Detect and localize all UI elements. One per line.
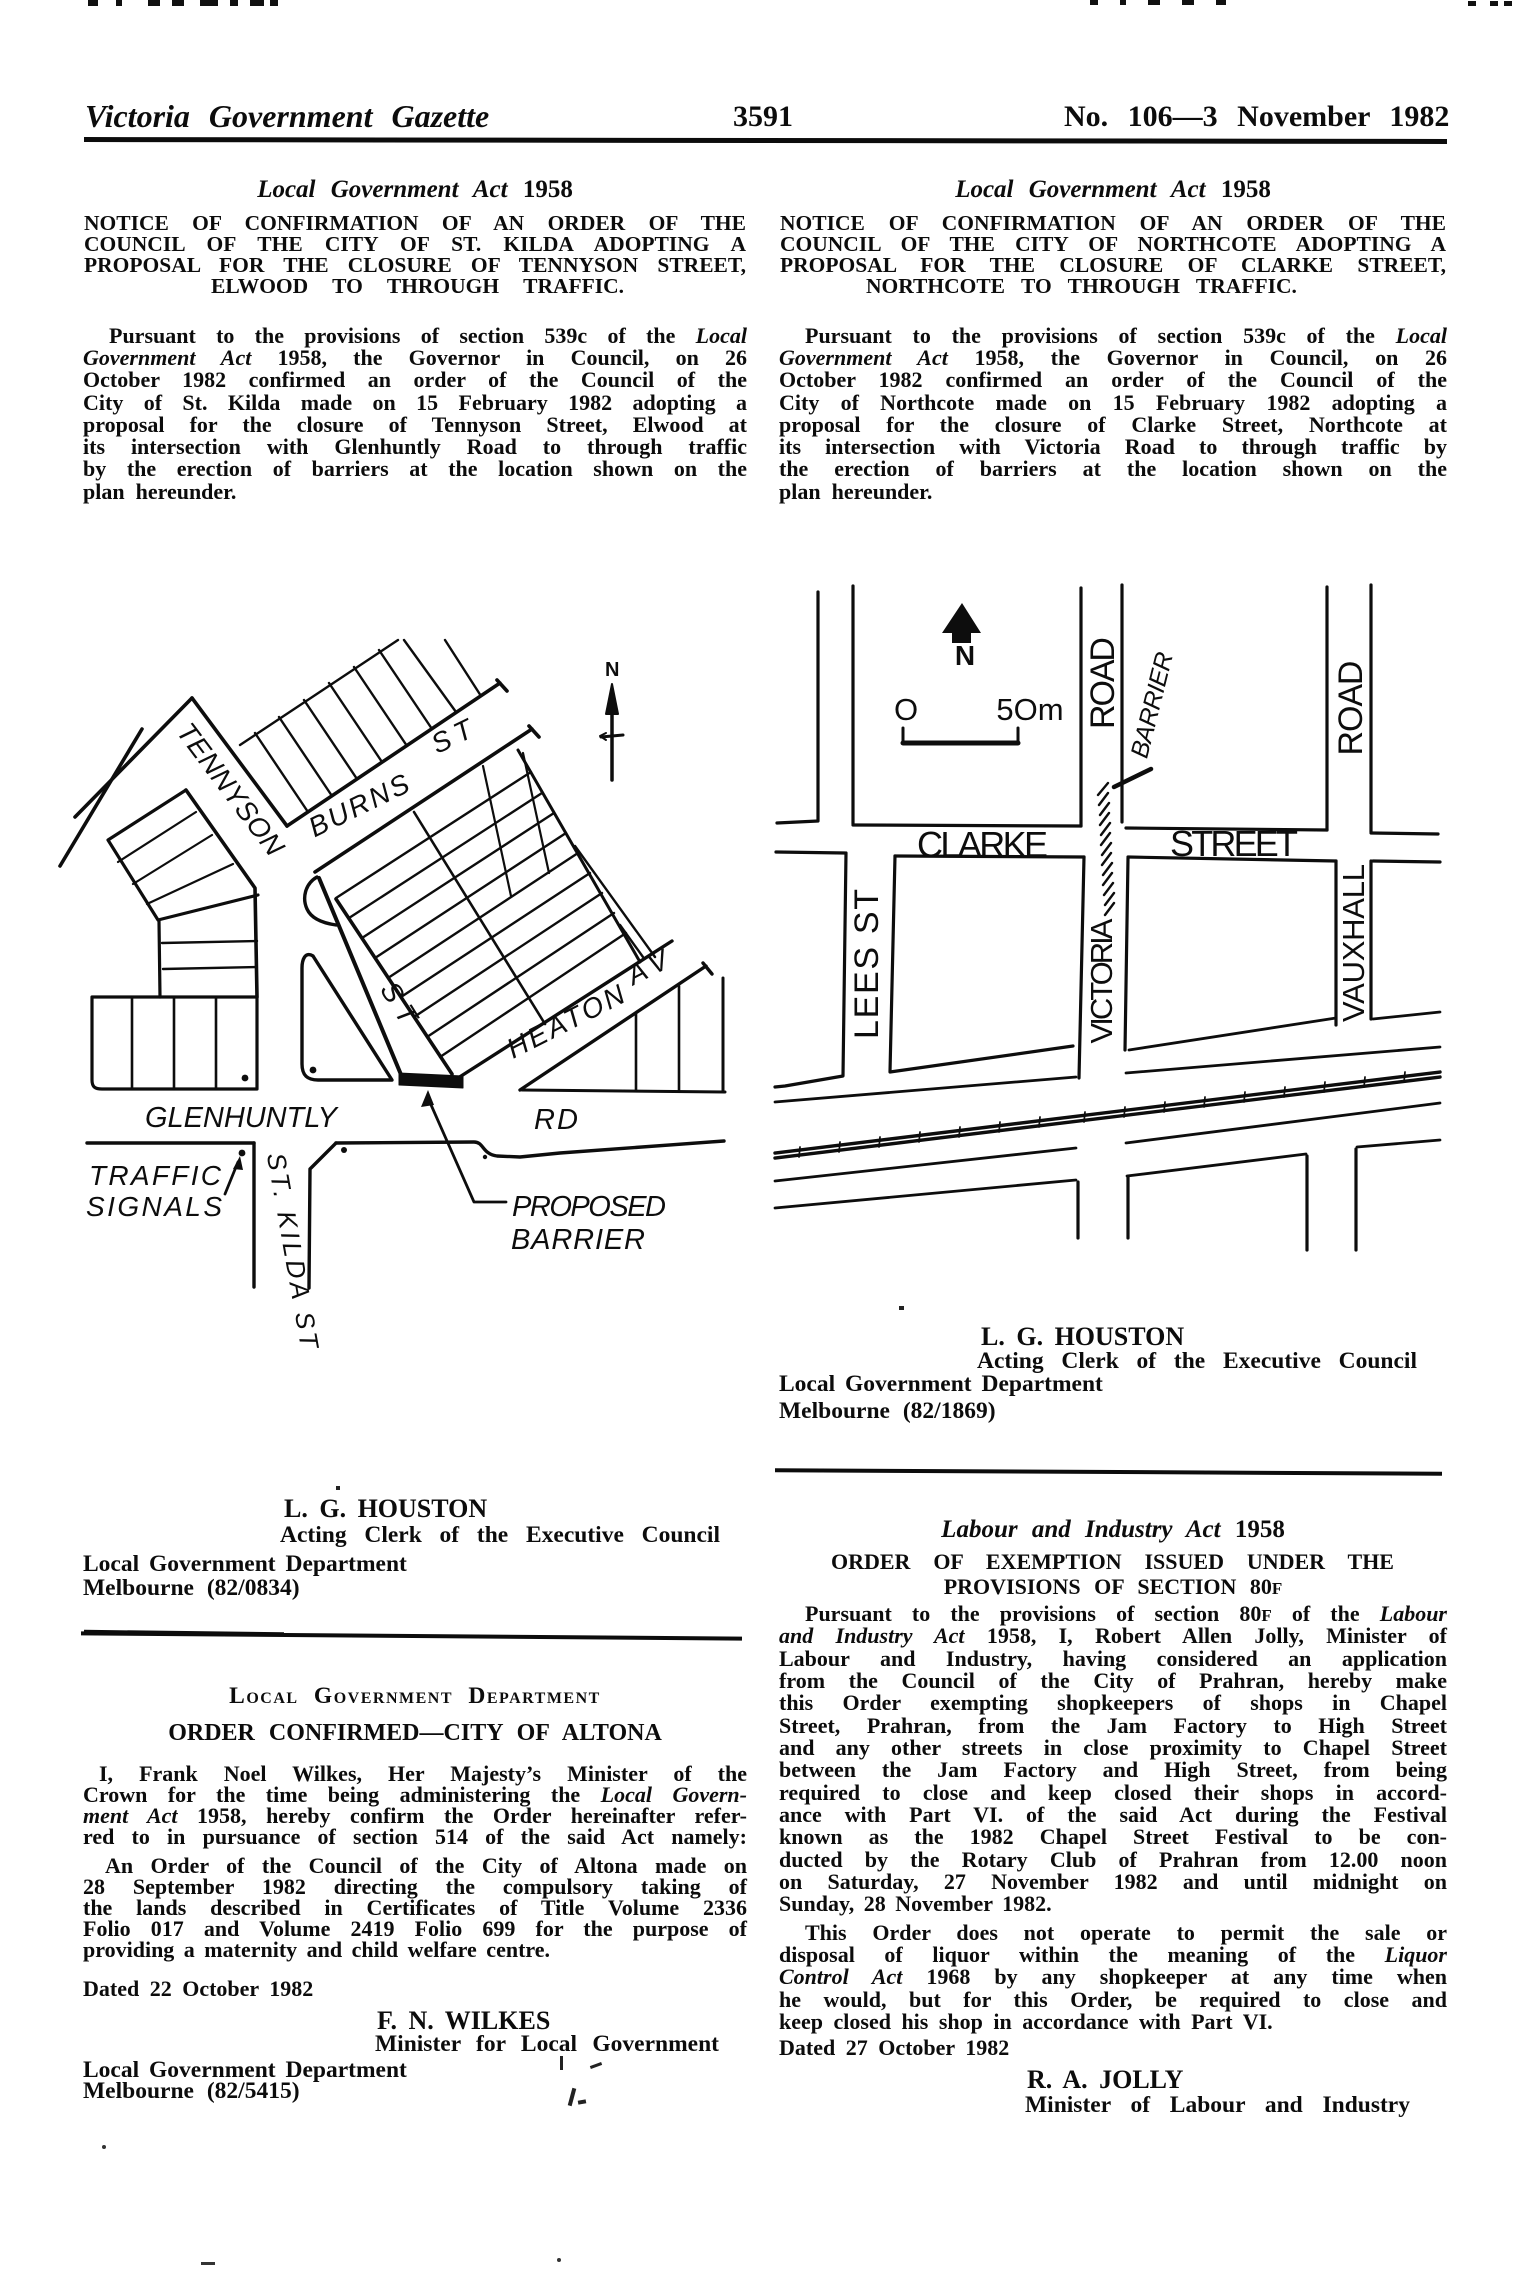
svg-text:VAUXHALL: VAUXHALL <box>1336 864 1371 1022</box>
svg-text:SIGNALS: SIGNALS <box>86 1191 222 1222</box>
svg-text:ROAD: ROAD <box>1084 637 1122 729</box>
svg-text:AV: AV <box>620 943 675 992</box>
svg-text:VICTORIA: VICTORIA <box>1084 918 1119 1043</box>
svg-text:TENNYSON: TENNYSON <box>171 717 291 862</box>
svg-text:ST: ST <box>426 712 479 759</box>
svg-text:ST. KILDA ST: ST. KILDA ST <box>261 1150 325 1352</box>
svg-text:GLENHUNTLY: GLENHUNTLY <box>145 1102 340 1134</box>
svg-text:CLARKE: CLARKE <box>917 824 1048 865</box>
svg-text:HEATON: HEATON <box>502 978 631 1064</box>
svg-text:BARRIER: BARRIER <box>1126 649 1179 761</box>
svg-text:O: O <box>894 692 918 727</box>
svg-text:RD: RD <box>534 1104 582 1136</box>
svg-text:ROAD: ROAD <box>1332 661 1370 756</box>
svg-text:LEES ST: LEES ST <box>848 889 886 1039</box>
svg-text:5Om: 5Om <box>996 692 1063 727</box>
svg-text:PROPOSED: PROPOSED <box>512 1191 666 1223</box>
svg-text:BARRIER: BARRIER <box>511 1224 645 1256</box>
svg-text:STREET: STREET <box>1170 823 1298 864</box>
svg-text:N: N <box>605 659 619 681</box>
svg-text:TRAFFIC: TRAFFIC <box>89 1160 222 1191</box>
svg-text:N: N <box>955 640 975 671</box>
